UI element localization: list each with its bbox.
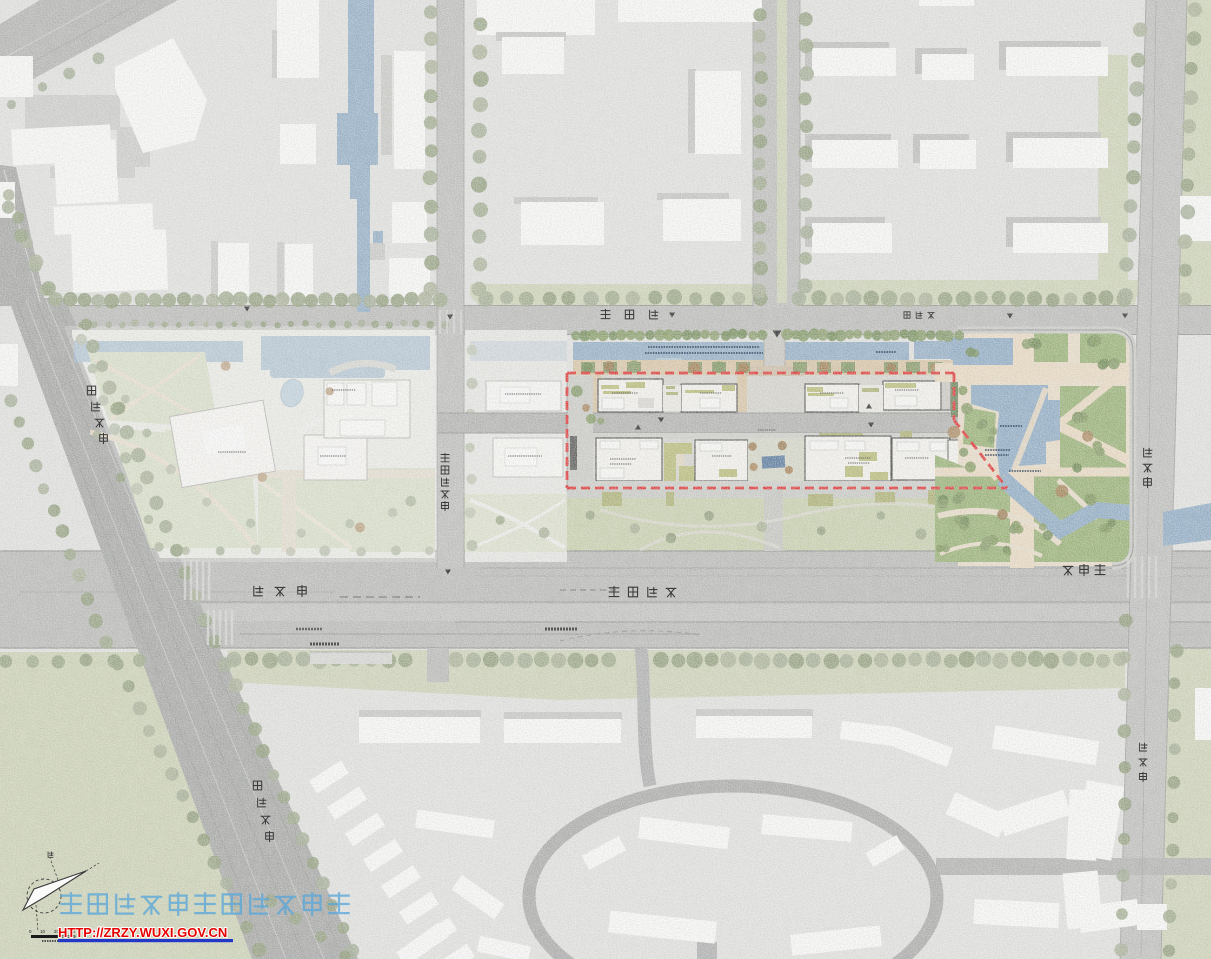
svg-text:10: 10	[40, 929, 46, 934]
svg-text:HTTP://ZRZY.WUXI.GOV.CN: HTTP://ZRZY.WUXI.GOV.CN	[58, 925, 227, 940]
